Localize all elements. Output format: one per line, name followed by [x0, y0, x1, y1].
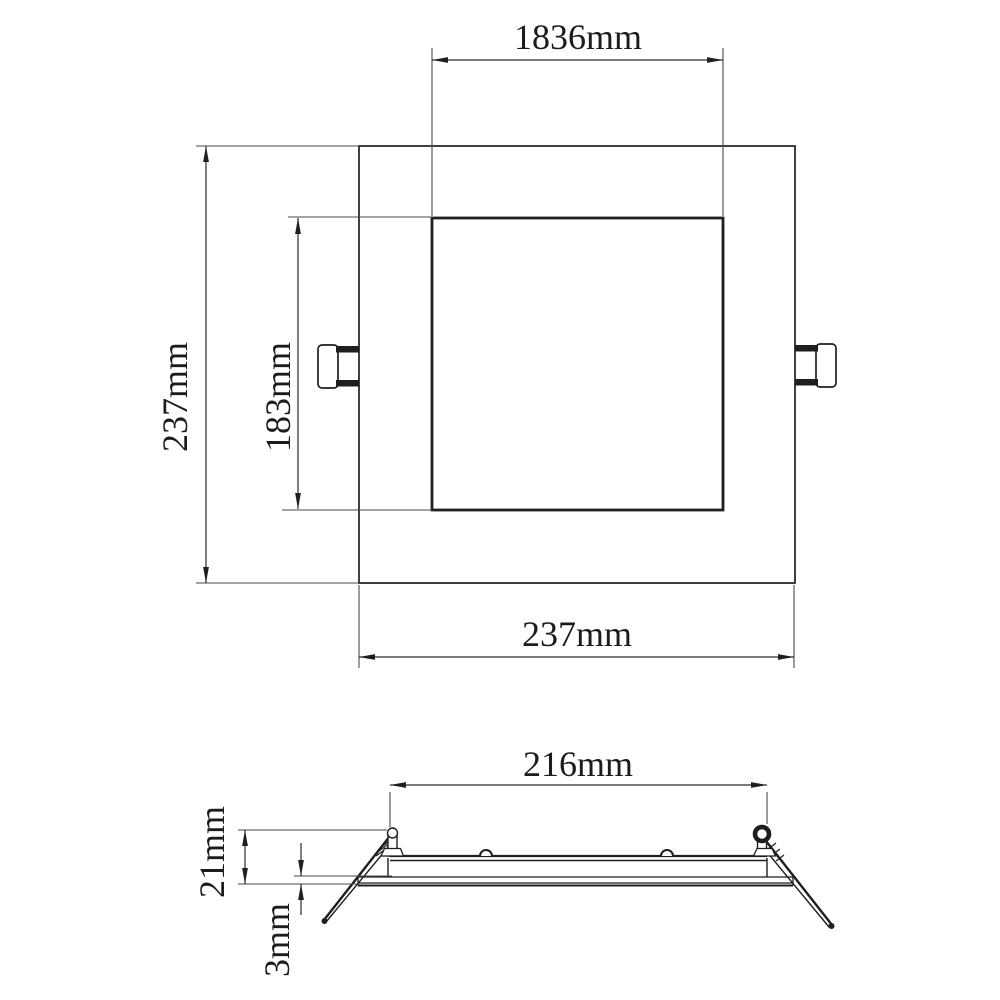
clip-spring-box: [816, 344, 836, 387]
technical-drawing: 1836mm 237mm 183mm 237mm: [0, 0, 1000, 1000]
panel-body: [388, 856, 767, 877]
clip-rail-top: [795, 345, 818, 352]
clip-foot: [754, 849, 776, 857]
clip-rail-top: [336, 346, 359, 353]
dim-inner-height: 183mm: [258, 217, 432, 510]
dim-label-inner-height: 183mm: [258, 342, 298, 452]
dim-thickness: 3mm: [257, 843, 392, 977]
inner-panel-square: [432, 218, 723, 510]
dim-label-thickness: 3mm: [257, 903, 297, 977]
clip-foot: [381, 849, 404, 857]
side-view: 216mm 21mm 3mm: [192, 744, 835, 977]
dim-label-inner-width: 1836mm: [514, 17, 642, 57]
clip-loop-ring: [755, 827, 769, 841]
panel-flange: [358, 877, 793, 886]
screw-bump-left: [480, 850, 492, 856]
drawing-canvas: 1836mm 237mm 183mm 237mm: [0, 0, 1000, 1000]
clip-rail-bottom: [795, 379, 818, 386]
spring-clip-right: [754, 827, 835, 929]
mounting-clip-right: [795, 344, 836, 387]
spring-wire: [324, 836, 390, 920]
clip-spring-box: [318, 345, 338, 388]
spring-wire-tip: [829, 923, 835, 929]
top-view: 1836mm 237mm 183mm 237mm: [155, 17, 836, 668]
mounting-clip-left: [318, 345, 359, 388]
clip-rail-bottom: [336, 380, 359, 387]
clip-post-knob: [388, 828, 398, 838]
dim-outer-width: 237mm: [359, 585, 794, 668]
dim-outer-height: 237mm: [155, 146, 359, 583]
dim-label-height: 21mm: [192, 806, 232, 898]
screw-bump-right: [661, 850, 673, 856]
dim-height: 21mm: [192, 806, 387, 898]
dim-inner-width: 1836mm: [432, 17, 723, 216]
dim-label-outer-width: 237mm: [522, 614, 632, 654]
dim-label-outer-height: 237mm: [155, 342, 195, 452]
dim-label-cutout-width: 216mm: [523, 744, 633, 784]
spring-wire-tip: [322, 918, 328, 924]
dim-cutout-width: 216mm: [390, 744, 767, 827]
outer-frame-square: [359, 146, 795, 583]
